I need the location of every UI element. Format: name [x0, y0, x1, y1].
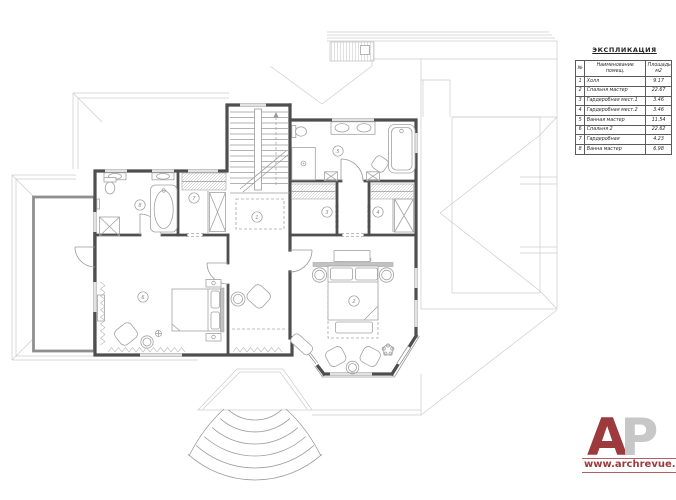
armchair [245, 283, 273, 311]
bedroom-2-furniture [98, 280, 225, 353]
logo: АР [587, 412, 655, 464]
curtain-zigzag [233, 348, 282, 353]
legend-row: 6Спальня 222.62 [576, 125, 672, 135]
legend-cell-area: 22.67 [646, 86, 672, 96]
exterior-fan-stairs [188, 409, 322, 480]
staircase [230, 109, 290, 229]
legend-cell-area: 3.46 [646, 96, 672, 106]
console [334, 251, 370, 262]
legend-col-name: Наименование помещ. [585, 61, 646, 77]
legend-row: 5Ванная мастер11.54 [576, 116, 672, 126]
double-vanity [331, 122, 375, 135]
legend: ЭКСПЛИКАЦИЯ № Наименование помещ. Площад… [575, 46, 674, 155]
legend-cell-name: Гардеробная мест.2 [585, 106, 646, 116]
legend-col-number: № [576, 61, 585, 77]
legend-cell-number: 8 [576, 145, 585, 155]
stair-direction-arrow [273, 112, 278, 117]
legend-cell-area: 3.46 [646, 106, 672, 116]
legend-cell-number: 5 [576, 116, 585, 126]
armchair [358, 345, 382, 368]
roof-hatch [330, 42, 374, 61]
room-number-text: 1 [255, 215, 258, 221]
wardrobes-3-4 [292, 184, 414, 232]
legend-row: 4Гардеробная мест.23.46 [576, 106, 672, 116]
legend-cell-number: 2 [576, 86, 585, 96]
legend-cell-name: Спальня 2 [585, 125, 646, 135]
legend-cell-number: 7 [576, 135, 585, 145]
legend-cell-area: 9.17 [646, 77, 672, 87]
master-bathtub [389, 125, 416, 174]
armchair [324, 345, 348, 368]
room-number-text: 3 [325, 210, 328, 216]
legend-row: 3Гардеробная мест.13.46 [576, 96, 672, 106]
legend-row: 7Гардеробная4.23 [576, 135, 672, 145]
legend-cell-name: Ванна мастер [585, 145, 646, 155]
room-number-text: 5 [336, 149, 339, 155]
pillow [331, 268, 353, 280]
legend-cell-name: Гардеробная мест.1 [585, 96, 646, 106]
pillow [356, 268, 378, 280]
bed-bench [336, 322, 373, 333]
room-number-text: 4 [376, 210, 379, 216]
toilet-tank [104, 178, 116, 183]
legend-row: 8Ванна мастер6.98 [576, 145, 672, 155]
pillow [211, 291, 220, 308]
master-bath-fixtures [292, 122, 415, 181]
site-link[interactable]: www.archrevue.ru [582, 458, 676, 473]
pillow [211, 312, 220, 329]
room-number-text: 2 [352, 299, 355, 305]
legend-header-row: № Наименование помещ. Площадь м2 [576, 61, 672, 77]
floor-plan-sheet: 12345678 ЭКСПЛИКАЦИЯ № Наименование поме… [0, 0, 676, 500]
armchair [113, 321, 140, 347]
legend-cell-area: 6.98 [646, 145, 672, 155]
legend-cell-name: Холл [585, 77, 646, 87]
balcony [34, 197, 95, 351]
stool [370, 154, 389, 173]
legend-row: 2Спальня мастер22.67 [576, 86, 672, 96]
radiator [97, 199, 100, 209]
nightstand [206, 280, 221, 288]
legend-cell-name: Спальня мастер [585, 86, 646, 96]
legend-row: 1Холл9.17 [576, 77, 672, 87]
headboard [221, 288, 225, 332]
nightstand [206, 334, 221, 342]
legend-cell-area: 22.62 [646, 125, 672, 135]
room-number-text: 6 [141, 295, 144, 301]
room-number-text: 8 [138, 203, 141, 209]
toilet-bowl [296, 127, 307, 136]
master-bedroom-furniture [289, 251, 394, 374]
legend-title: ЭКСПЛИКАЦИЯ [575, 46, 674, 54]
wardrobe-7 [182, 173, 226, 233]
legend-table: № Наименование помещ. Площадь м2 1Холл9.… [575, 60, 672, 155]
legend-cell-number: 1 [576, 77, 585, 87]
toilet-bowl [105, 182, 115, 194]
legend-cell-name: Ванная мастер [585, 116, 646, 126]
legend-cell-number: 3 [576, 96, 585, 106]
legend-cell-name: Гардеробная [585, 135, 646, 145]
legend-cell-number: 6 [576, 125, 585, 135]
legend-cell-area: 4.23 [646, 135, 672, 145]
legend-cell-area: 11.54 [646, 116, 672, 126]
hall-furniture [231, 283, 287, 352]
legend-cell-number: 4 [576, 106, 585, 116]
legend-col-area: Площадь м2 [646, 61, 672, 77]
